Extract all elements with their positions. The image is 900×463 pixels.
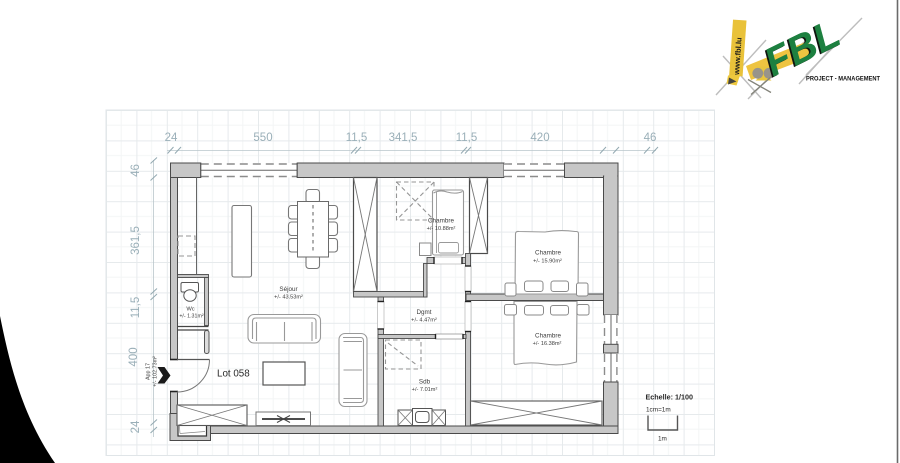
svg-text:400: 400 (128, 347, 140, 366)
svg-text:PROJECT - MANAGEMENT: PROJECT - MANAGEMENT (806, 76, 880, 83)
svg-text:341,5: 341,5 (389, 132, 418, 144)
svg-text:46: 46 (130, 164, 142, 177)
svg-text:App 17: App 17 (146, 363, 152, 380)
svg-text:+/- 10.88m²: +/- 10.88m² (427, 226, 456, 232)
svg-text:Chambre: Chambre (428, 218, 454, 225)
svg-text:+/- 4.47m²: +/- 4.47m² (411, 318, 437, 324)
svg-text:Séjour: Séjour (279, 286, 297, 293)
svg-text:11,5: 11,5 (346, 132, 368, 144)
svg-text:+/- 16.38m²: +/- 16.38m² (533, 341, 562, 347)
svg-text:+/- 7.01m²: +/- 7.01m² (412, 387, 438, 393)
svg-text:24: 24 (165, 132, 178, 144)
svg-text:+/- 43.53m²: +/- 43.53m² (274, 295, 303, 301)
svg-text:11,5: 11,5 (130, 297, 142, 319)
svg-text:Lot 058: Lot 058 (217, 369, 250, 380)
svg-text:1cm=1m: 1cm=1m (646, 407, 671, 414)
svg-text:Echelle: 1/100: Echelle: 1/100 (646, 393, 694, 402)
svg-text:1m: 1m (658, 436, 667, 443)
svg-text:361,5: 361,5 (130, 226, 142, 255)
svg-text:24: 24 (130, 420, 142, 433)
svg-text:420: 420 (530, 132, 549, 144)
svg-text:Wc: Wc (186, 307, 194, 313)
svg-text:Sdb: Sdb (419, 379, 431, 386)
svg-text:+/- 102.73m²: +/- 102.73m² (153, 356, 159, 387)
svg-text:550: 550 (253, 132, 272, 144)
svg-text:Chambre: Chambre (535, 250, 561, 257)
svg-text:Chambre: Chambre (535, 333, 561, 340)
svg-text:46: 46 (644, 132, 657, 144)
svg-text:+/- 1.31m²: +/- 1.31m² (179, 314, 204, 320)
svg-text:11,5: 11,5 (456, 132, 478, 144)
svg-text:+/- 15.90m²: +/- 15.90m² (533, 259, 562, 265)
svg-text:Dgmt: Dgmt (416, 309, 431, 316)
